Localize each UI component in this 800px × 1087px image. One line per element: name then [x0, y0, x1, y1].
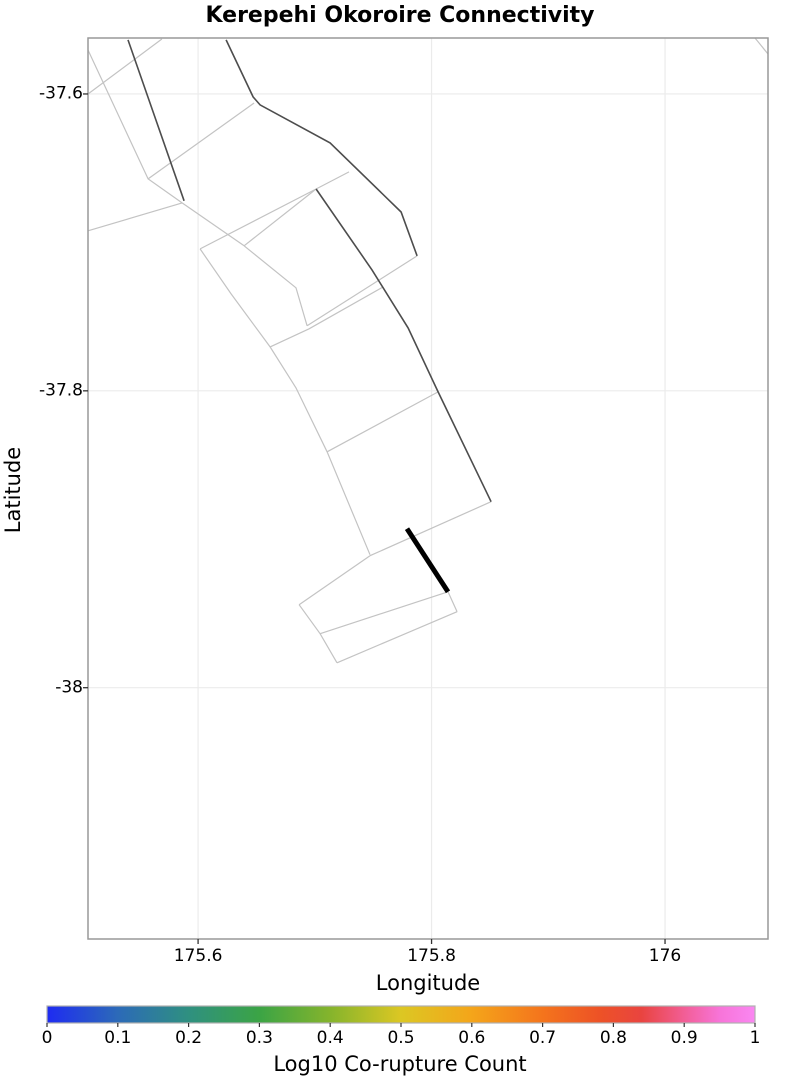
connectivity-map-figure: Kerepehi Okoroire Connectivity Longitude…	[0, 0, 800, 1087]
plot-background	[88, 38, 768, 939]
colorbar-tick-label: 0.6	[458, 1028, 485, 1048]
colorbar-tick-label: 0	[42, 1028, 53, 1048]
x-tick-label: 176	[649, 946, 681, 966]
x-tick-label: 175.8	[407, 946, 456, 966]
colorbar-tick-label: 0.5	[387, 1028, 414, 1048]
colorbar-tick-label: 0.1	[104, 1028, 131, 1048]
y-tick-label: -38	[3, 677, 83, 697]
colorbar-tick-label: 0.2	[175, 1028, 202, 1048]
colorbar-gradient-bar	[47, 1006, 755, 1023]
colorbar-tick-label: 0.8	[600, 1028, 627, 1048]
colorbar-label: Log10 Co-rupture Count	[0, 1052, 800, 1076]
chart-title: Kerepehi Okoroire Connectivity	[0, 3, 800, 28]
x-tick-label: 175.6	[174, 946, 223, 966]
x-axis-label: Longitude	[88, 971, 768, 995]
colorbar-tick-label: 0.9	[671, 1028, 698, 1048]
y-tick-label: -37.8	[3, 380, 83, 400]
fault-map-canvas	[0, 0, 800, 1087]
y-tick-label: -37.6	[3, 84, 83, 104]
colorbar-tick-label: 0.7	[529, 1028, 556, 1048]
colorbar-tick-label: 1	[750, 1028, 761, 1048]
colorbar-tick-label: 0.4	[317, 1028, 344, 1048]
colorbar-tick-label: 0.3	[246, 1028, 273, 1048]
y-axis-label: Latitude	[1, 440, 25, 540]
